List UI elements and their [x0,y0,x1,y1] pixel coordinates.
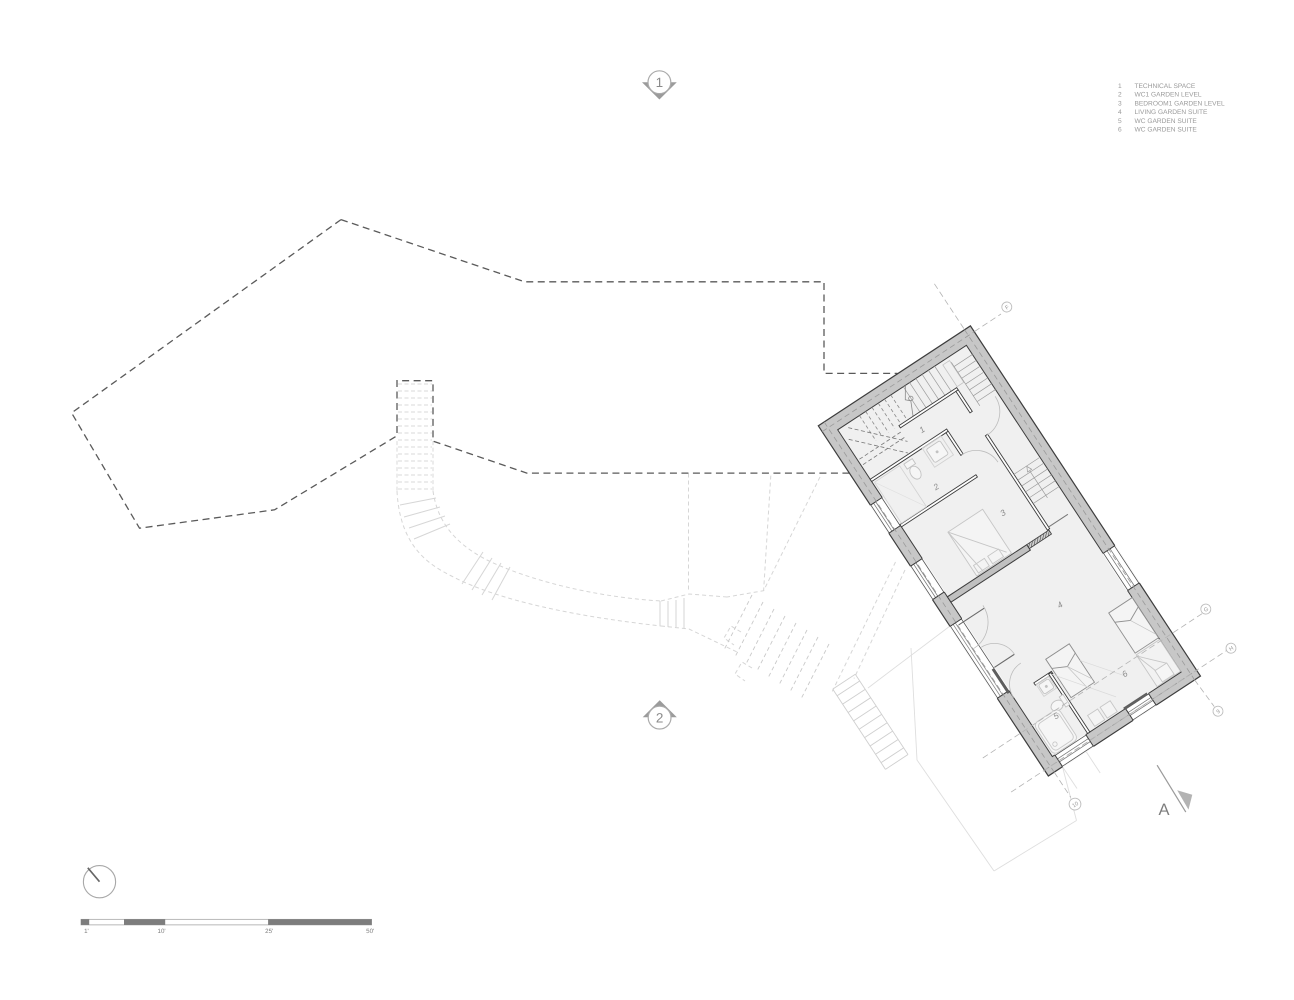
svg-text:WC GARDEN SUITE: WC GARDEN SUITE [1135,127,1198,134]
svg-text:1: 1 [656,75,664,90]
svg-text:BEDROOM1 GARDEN LEVEL: BEDROOM1 GARDEN LEVEL [1135,100,1225,107]
svg-text:A: A [1158,801,1169,819]
svg-text:6: 6 [1118,127,1122,134]
svg-text:2: 2 [1118,92,1122,99]
svg-text:1: 1 [1118,83,1122,90]
svg-text:TECHNICAL SPACE: TECHNICAL SPACE [1135,83,1196,90]
svg-text:1': 1' [84,928,89,935]
svg-text:WC1 GARDEN LEVEL: WC1 GARDEN LEVEL [1135,92,1202,99]
svg-text:10': 10' [158,928,166,935]
svg-text:25': 25' [265,928,273,935]
svg-text:3: 3 [1118,100,1122,107]
svg-text:WC GARDEN SUITE: WC GARDEN SUITE [1135,118,1198,125]
svg-text:50': 50' [366,928,374,935]
svg-text:LIVING GARDEN SUITE: LIVING GARDEN SUITE [1135,109,1209,116]
svg-text:5: 5 [1118,118,1122,125]
svg-text:4: 4 [1118,109,1122,116]
svg-text:2: 2 [656,710,664,725]
